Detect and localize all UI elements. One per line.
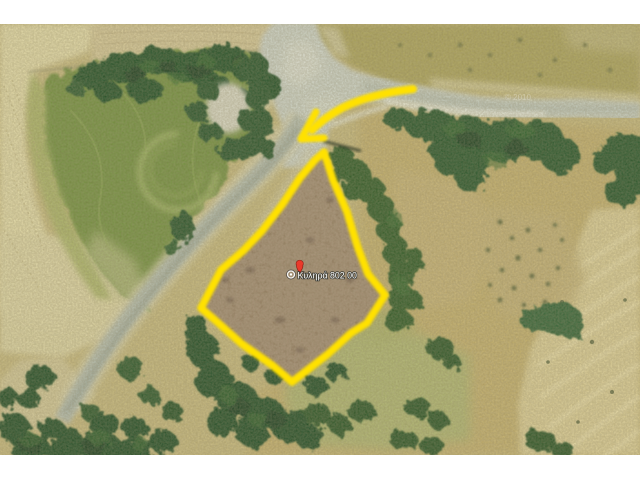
svg-text:© 2010: © 2010 [505,93,531,102]
svg-text:Κυληρά 802 00: Κυληρά 802 00 [298,271,358,281]
